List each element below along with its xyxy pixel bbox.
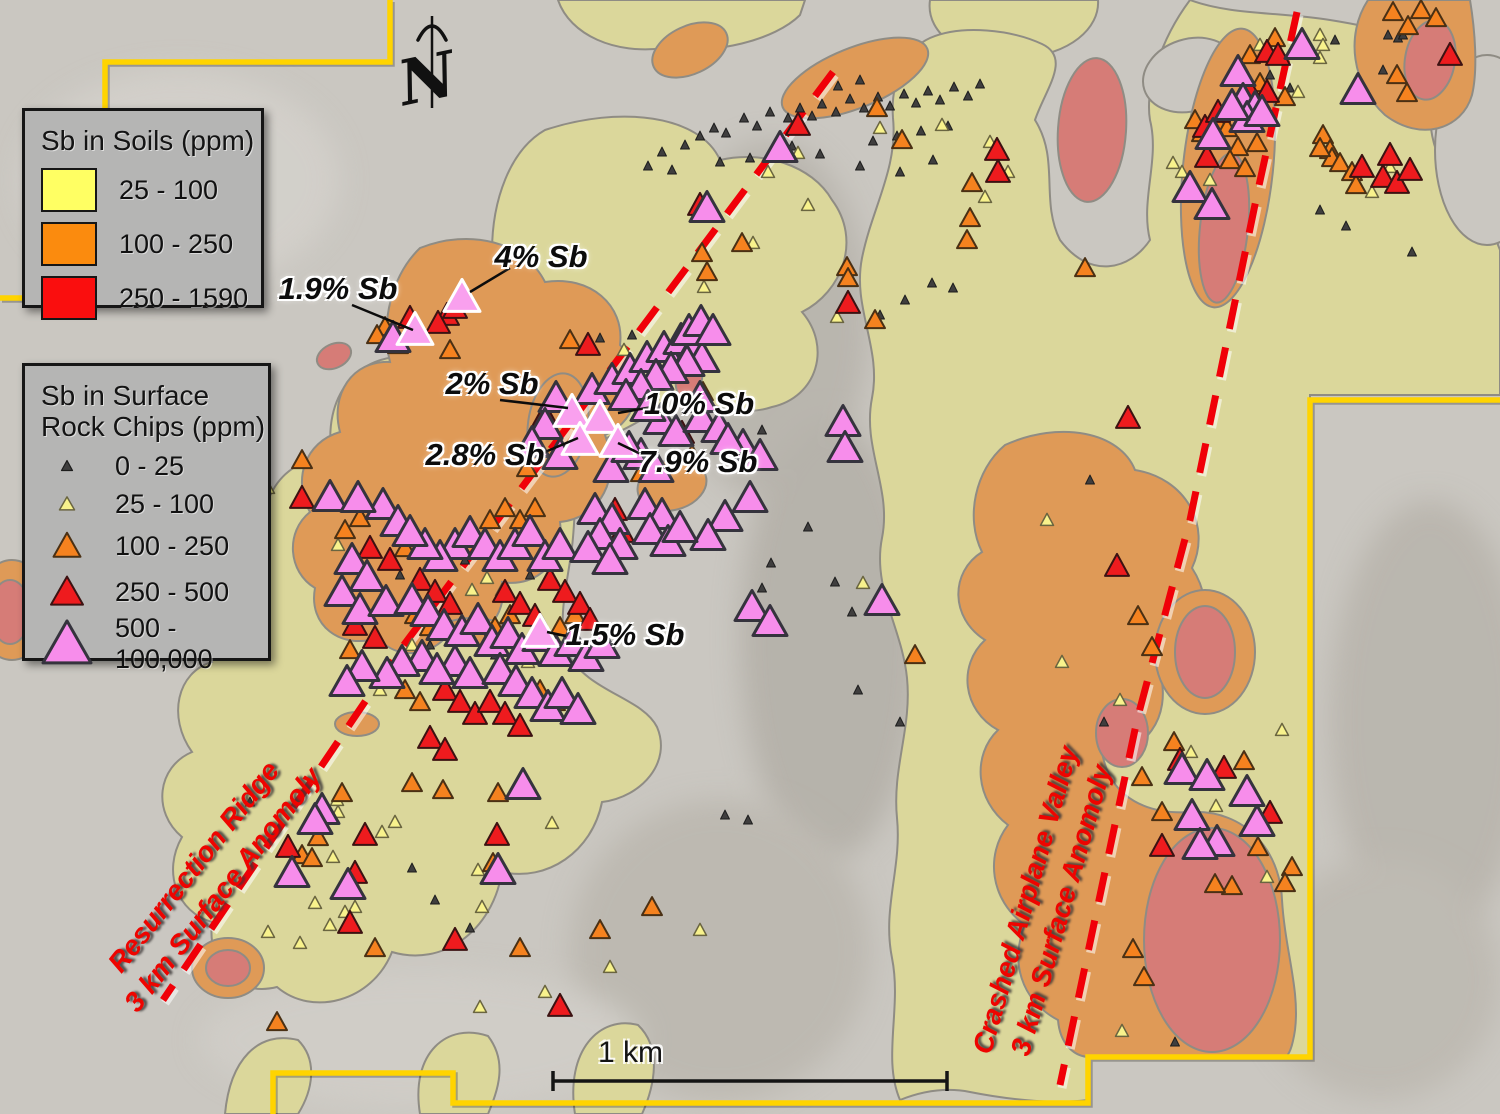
legend-soils-item: 250 - 1590 xyxy=(41,276,261,320)
sb-percent-annotation: 4% Sb xyxy=(494,239,587,275)
legend-rock-item-label: 500 - 100,000 xyxy=(115,613,268,675)
soil-red-patch-large xyxy=(1144,828,1280,1052)
legend-soils-title: Sb in Soils (ppm) xyxy=(25,111,261,158)
legend-rock-item-label: 25 - 100 xyxy=(115,489,214,520)
legend-rock-item-label: 0 - 25 xyxy=(115,451,184,482)
sb-percent-annotation: 1.5% Sb xyxy=(566,617,685,653)
legend-rock-items: 0 - 2525 - 100100 - 250250 - 500500 - 10… xyxy=(25,448,268,672)
sb-percent-annotation: 2% Sb xyxy=(445,366,538,402)
sb-percent-annotation: 10% Sb xyxy=(644,386,754,422)
legend-sb-in-soils: Sb in Soils (ppm) 25 - 100 100 - 250 250… xyxy=(22,108,264,308)
soil-red-patch xyxy=(206,950,250,986)
map-canvas[interactable]: N Sb in Soils (ppm) 25 - 100 100 - 250 2… xyxy=(0,0,1500,1114)
legend-rock-title-line2: Rock Chips (ppm) xyxy=(41,411,268,442)
legend-rock-title-line1: Sb in Surface xyxy=(41,380,268,411)
legend-rock-item: 0 - 25 xyxy=(39,448,268,484)
soil-swatch-yellow xyxy=(41,168,97,212)
legend-triangle-icon xyxy=(39,448,101,484)
legend-triangle-icon xyxy=(39,524,101,568)
legend-rock-item: 25 - 100 xyxy=(39,484,268,524)
sb-percent-annotation: 7.9% Sb xyxy=(639,444,758,480)
legend-triangle-icon xyxy=(39,568,101,616)
legend-rock-item: 500 - 100,000 xyxy=(39,616,268,672)
soil-swatch-orange xyxy=(41,222,97,266)
legend-rock-item: 250 - 500 xyxy=(39,568,268,616)
soil-swatch-red xyxy=(41,276,97,320)
sb-percent-annotation: 2.8% Sb xyxy=(426,437,545,473)
scale-bar-label: 1 km xyxy=(598,1036,663,1070)
soil-red-patch xyxy=(1175,606,1235,698)
legend-sb-rock-chips: Sb in Surface Rock Chips (ppm) 0 - 2525 … xyxy=(22,363,271,661)
sb-percent-annotation: 1.9% Sb xyxy=(279,271,398,307)
legend-soils-item: 100 - 250 xyxy=(41,222,261,266)
legend-triangle-icon xyxy=(39,484,101,524)
legend-rock-item-label: 250 - 500 xyxy=(115,577,229,608)
legend-triangle-icon xyxy=(39,616,101,672)
legend-soils-item: 25 - 100 xyxy=(41,168,261,212)
legend-rock-item: 100 - 250 xyxy=(39,524,268,568)
legend-rock-item-label: 100 - 250 xyxy=(115,531,229,562)
